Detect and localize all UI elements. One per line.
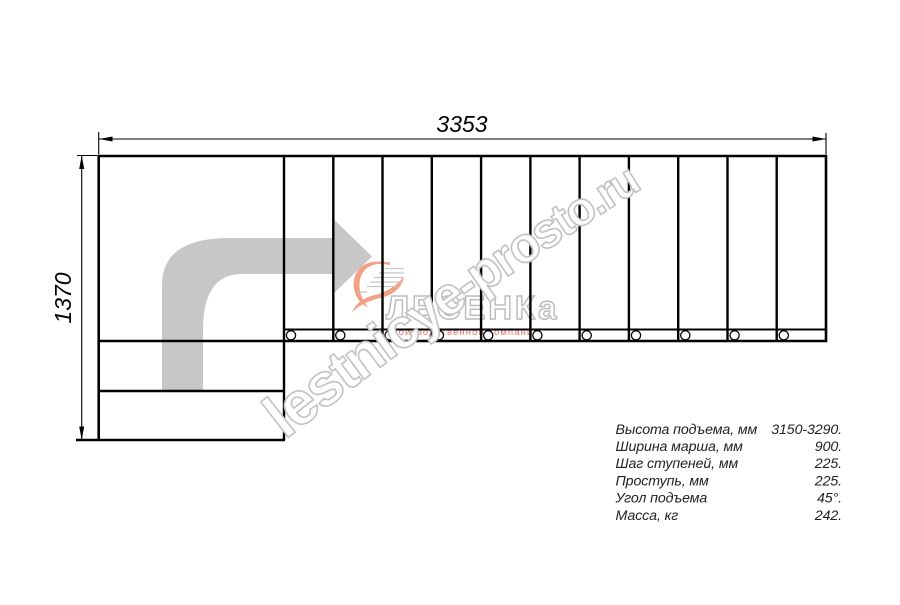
- svg-text:Масса, кг: Масса, кг: [616, 508, 679, 524]
- svg-text:3150-3290.: 3150-3290.: [771, 422, 842, 438]
- svg-text:Высота подъема, мм: Высота подъема, мм: [616, 422, 758, 438]
- svg-text:900.: 900.: [815, 439, 842, 455]
- svg-text:225.: 225.: [814, 456, 842, 472]
- svg-text:Угол подъема: Угол подъема: [615, 491, 708, 507]
- svg-text:3353: 3353: [436, 111, 487, 137]
- svg-text:Ширина марша, мм: Ширина марша, мм: [616, 439, 744, 455]
- svg-text:1370: 1370: [50, 272, 76, 323]
- svg-text:225.: 225.: [814, 473, 842, 489]
- svg-text:45°.: 45°.: [817, 491, 842, 507]
- svg-text:242.: 242.: [814, 508, 842, 524]
- svg-text:Шаг ступеней, мм: Шаг ступеней, мм: [616, 456, 739, 472]
- svg-text:Проступь, мм: Проступь, мм: [616, 473, 710, 489]
